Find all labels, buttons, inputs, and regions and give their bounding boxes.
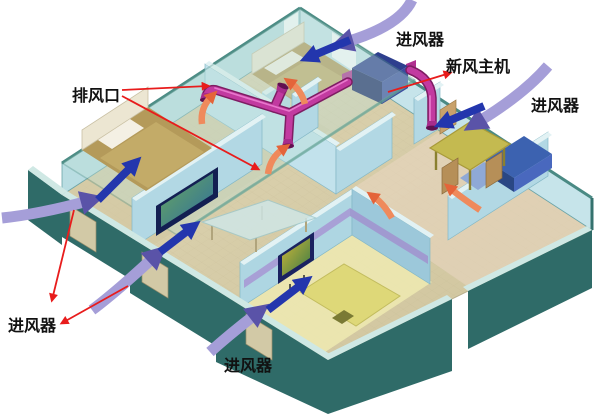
diagram-canvas: 排风口 进风器 新风主机 进风器 进风器 进风器 (0, 0, 600, 414)
label-exhaust-outlet: 排风口 (72, 86, 120, 105)
ventilation-diagram: 排风口 进风器 新风主机 进风器 进风器 进风器 (0, 0, 600, 414)
pointer-inlet-left-2 (62, 286, 128, 323)
label-air-inlet-top: 进风器 (396, 30, 445, 49)
label-air-inlet-right: 进风器 (531, 96, 580, 115)
label-air-inlet-bottom-center: 进风器 (224, 356, 273, 375)
exhaust-vent-3 (426, 121, 438, 130)
label-fresh-air-unit: 新风主机 (446, 57, 510, 76)
exhaust-vent-2 (282, 139, 294, 148)
label-air-inlet-bottom-left: 进风器 (8, 316, 57, 335)
